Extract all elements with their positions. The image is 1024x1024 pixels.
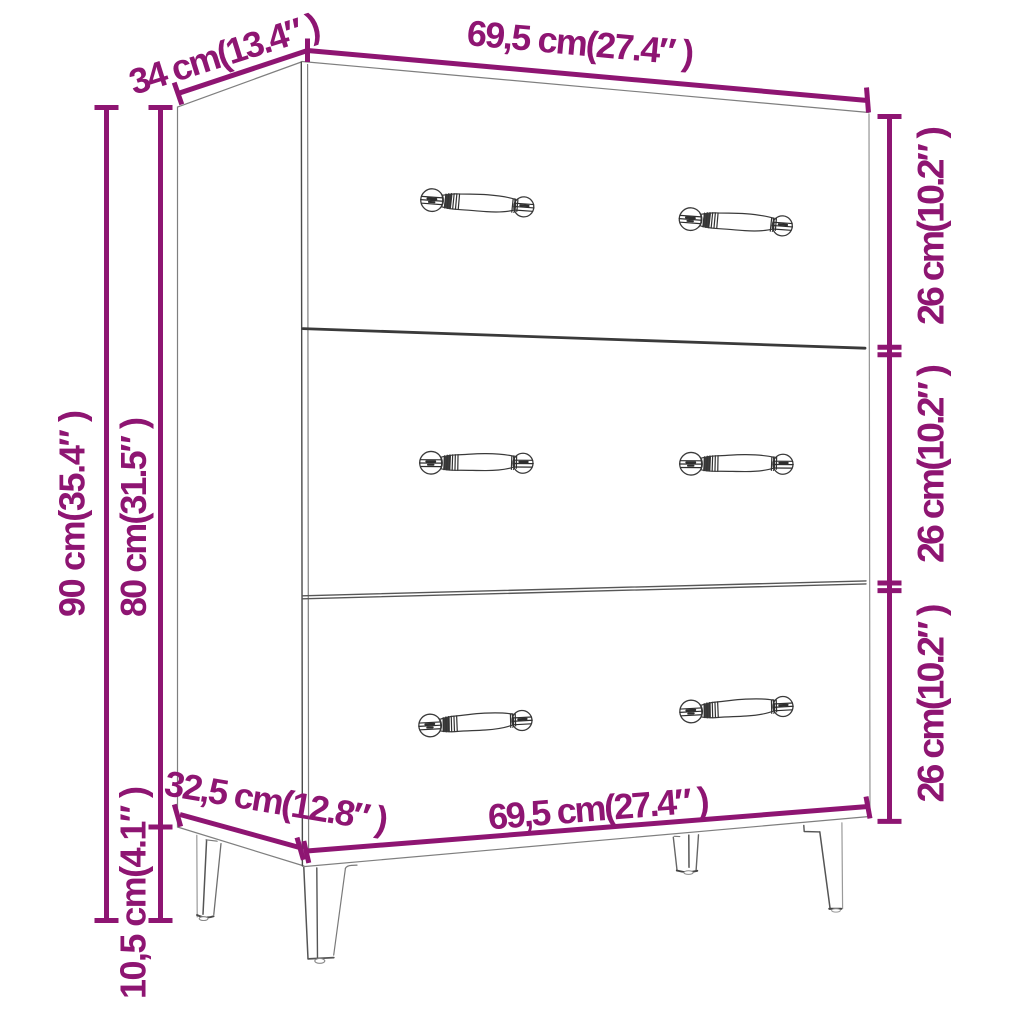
svg-text:26 cm(10.2″ ): 26 cm(10.2″ ) [910,604,952,803]
svg-text:26 cm(10.2″ ): 26 cm(10.2″ ) [910,364,952,563]
svg-text:80 cm(31.5″ ): 80 cm(31.5″ ) [113,417,154,617]
svg-text:90 cm(35.4″ ): 90 cm(35.4″ ) [52,410,93,617]
svg-text:10,5 cm(4.1″ ): 10,5 cm(4.1″ ) [113,786,154,999]
svg-text:26 cm(10.2″ ): 26 cm(10.2″ ) [910,126,952,325]
